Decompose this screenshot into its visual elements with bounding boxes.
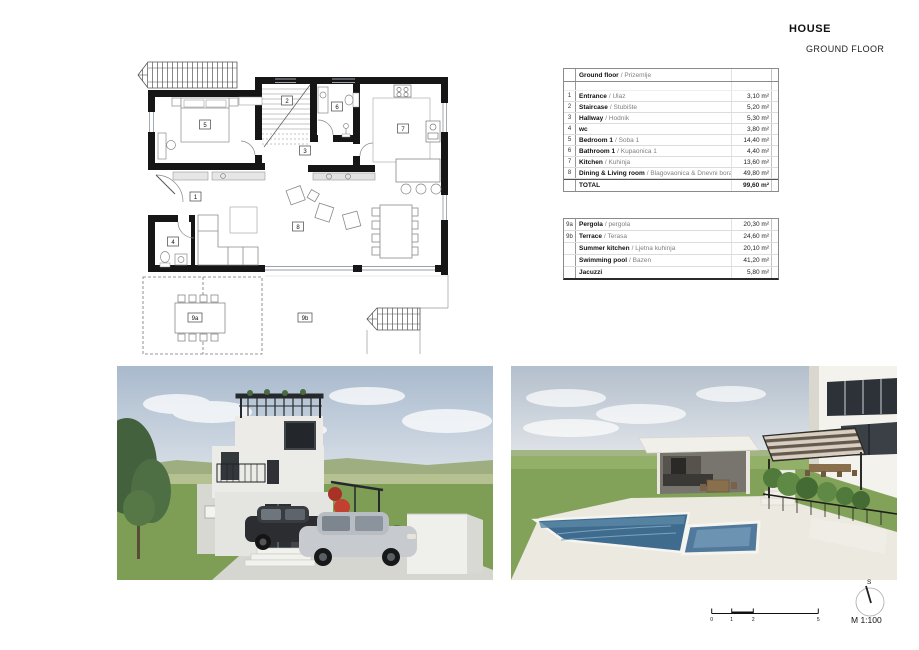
room-name-croatian: / Soba 1	[615, 137, 639, 144]
room-area: 49,80 m²	[731, 168, 771, 178]
outdoor-rows: 9a Pergola / pergola 20,30 m² 9b Terrace…	[564, 219, 778, 278]
room-name-croatian: / Hodnik	[605, 115, 629, 122]
outdoor-area-table: 9a Pergola / pergola 20,30 m² 9b Terrace…	[563, 218, 779, 280]
room-name: Bedroom 1	[579, 137, 613, 144]
room-area: 20,30 m²	[731, 219, 771, 230]
room-name: Swimming pool	[579, 257, 627, 264]
room-label-8: 8	[293, 222, 304, 231]
room-name: Terrace	[579, 233, 602, 240]
room-name-croatian: / Ljetna kuhinja	[632, 245, 676, 252]
floor-plan: 1 2 3 4 5 6 7 8 9a 9b	[115, 55, 465, 355]
room-name: Hallway	[579, 115, 603, 122]
room-name-croatian: / Bazen	[629, 257, 651, 264]
room-area: 4,40 m²	[731, 146, 771, 156]
bedroom-desk	[158, 133, 176, 159]
room-name: Entrance	[579, 93, 607, 100]
north-compass: S	[845, 572, 895, 620]
garage-cube	[407, 514, 483, 574]
table-header-row: Ground floor / Prizemlje	[564, 69, 778, 82]
room-name: Kitchen	[579, 159, 603, 166]
room-name-croatian: / Stubište	[610, 104, 637, 111]
room-area: 5,80 m²	[731, 267, 771, 278]
room-label-9a: 9a	[188, 313, 202, 322]
table-spacer-row	[564, 82, 778, 91]
scale-label: M 1:100	[851, 615, 882, 625]
bathroom-fixtures	[318, 87, 359, 137]
drawing-sheet: HOUSE GROUND FLOOR	[0, 0, 919, 650]
mid-window	[267, 460, 279, 484]
svg-text:9a: 9a	[192, 316, 199, 322]
room-name-croatian: / Blagovaonica & Dnevni boravak	[647, 170, 731, 177]
room-area: 41,20 m²	[731, 255, 771, 266]
entry-wardrobe	[173, 172, 265, 180]
room-label-1: 1	[190, 192, 201, 201]
table-header-title: Ground floor	[579, 72, 619, 79]
svg-text:9b: 9b	[302, 316, 309, 322]
room-name: Pergola	[579, 221, 603, 228]
scale-tick-5: 5	[817, 617, 820, 623]
total-label: TOTAL	[579, 182, 600, 189]
row-number	[564, 243, 576, 254]
room-label-4: 4	[168, 237, 179, 246]
row-number: 2	[564, 102, 576, 112]
row-number: 6	[564, 146, 576, 156]
ground-floor-area-table: Ground floor / Prizemlje 1 Entrance / Ul…	[563, 68, 779, 192]
row-number: 3	[564, 113, 576, 123]
area-table-row: 2 Staircase / Stubište 5,20 m²	[564, 102, 778, 113]
area-table-row: 3 Hallway / Hodnik 5,30 m²	[564, 113, 778, 124]
room-label-5: 5	[200, 120, 211, 129]
room-area: 20,10 m²	[731, 243, 771, 254]
scale-bar: 0 1 2 5	[702, 595, 832, 635]
room-area: 5,30 m²	[731, 113, 771, 123]
staircase	[262, 85, 310, 147]
room-name: Bathroom 1	[579, 148, 615, 155]
room-area: 3,10 m²	[731, 91, 771, 101]
table-total-row: TOTAL 99,60 m²	[564, 179, 778, 191]
area-table-row: 8 Dining & Living room / Blagovaonica & …	[564, 168, 778, 179]
render-pool-view	[511, 366, 897, 580]
hall-sideboard	[313, 173, 375, 180]
row-number	[564, 255, 576, 266]
room-name: Jacuzzi	[579, 269, 602, 276]
room-area: 13,60 m²	[731, 157, 771, 167]
row-number: 5	[564, 135, 576, 145]
row-number: 8	[564, 168, 576, 178]
render-front-view	[117, 366, 493, 580]
scale-tick-2: 2	[752, 617, 755, 623]
area-table-row: Jacuzzi 5,80 m²	[564, 267, 778, 278]
exterior-stair-bottom	[367, 275, 448, 354]
row-number: 9a	[564, 219, 576, 230]
area-table-row: 4 wc 3,80 m²	[564, 124, 778, 135]
table-header-title-croatian: / Prizemlje	[621, 72, 651, 79]
room-area: 3,80 m²	[731, 124, 771, 134]
room-label-7: 7	[398, 124, 409, 133]
page-subtitle: GROUND FLOOR	[806, 44, 884, 54]
room-name-croatian: / Kupaonica 1	[617, 148, 657, 155]
area-table-row: 9a Pergola / pergola 20,30 m²	[564, 219, 778, 231]
bed	[172, 97, 262, 142]
room-area: 24,60 m²	[731, 231, 771, 242]
row-number: 9b	[564, 231, 576, 242]
room-name-croatian: / Terasa	[604, 233, 627, 240]
room-name: Staircase	[579, 104, 608, 111]
room-rows: 1 Entrance / Ulaz 3,10 m² 2 Staircase / …	[564, 91, 778, 179]
area-table-row: 1 Entrance / Ulaz 3,10 m²	[564, 91, 778, 102]
area-table-row: Swimming pool / Bazen 41,20 m²	[564, 255, 778, 267]
scale-tick-1: 1	[730, 617, 733, 623]
area-table-row: 9b Terrace / Terasa 24,60 m²	[564, 231, 778, 243]
area-table-row: 7 Kitchen / Kuhinja 13,60 m²	[564, 157, 778, 168]
room-name-croatian: / Ulaz	[609, 93, 626, 100]
room-name: Dining & Living room	[579, 170, 645, 177]
jacuzzi	[683, 522, 759, 554]
sofa	[198, 215, 258, 265]
row-number: 1	[564, 91, 576, 101]
room-name-croatian: / pergola	[605, 221, 630, 228]
room-name-croatian: / Kuhinja	[605, 159, 630, 166]
wc-fixtures	[160, 252, 187, 268]
dining-table	[372, 205, 418, 258]
summer-kitchen	[639, 436, 759, 494]
exterior-stair-top	[138, 62, 237, 88]
row-number	[564, 267, 576, 278]
room-name: Summer kitchen	[579, 245, 630, 252]
area-table-row: 6 Bathroom 1 / Kupaonica 1 4,40 m²	[564, 146, 778, 157]
room-label-6: 6	[332, 102, 343, 111]
row-number: 4	[564, 124, 576, 134]
scale-tick-0: 0	[710, 617, 713, 623]
area-table-row: 5 Bedroom 1 / Soba 1 14,40 m²	[564, 135, 778, 146]
rug	[230, 207, 257, 233]
room-label-9b: 9b	[298, 313, 312, 322]
compass-letter: S	[867, 579, 872, 586]
kitchen	[373, 85, 441, 194]
room-label-2: 2	[282, 96, 293, 105]
room-area: 14,40 m²	[731, 135, 771, 145]
room-label-3: 3	[300, 146, 311, 155]
upper-window	[285, 422, 315, 449]
area-table-row: Summer kitchen / Ljetna kuhinja 20,10 m²	[564, 243, 778, 255]
room-area: 5,20 m²	[731, 102, 771, 112]
row-number: 7	[564, 157, 576, 167]
room-name: wc	[579, 126, 588, 133]
total-area: 99,60 m²	[731, 180, 771, 191]
page-title: HOUSE	[789, 23, 831, 35]
